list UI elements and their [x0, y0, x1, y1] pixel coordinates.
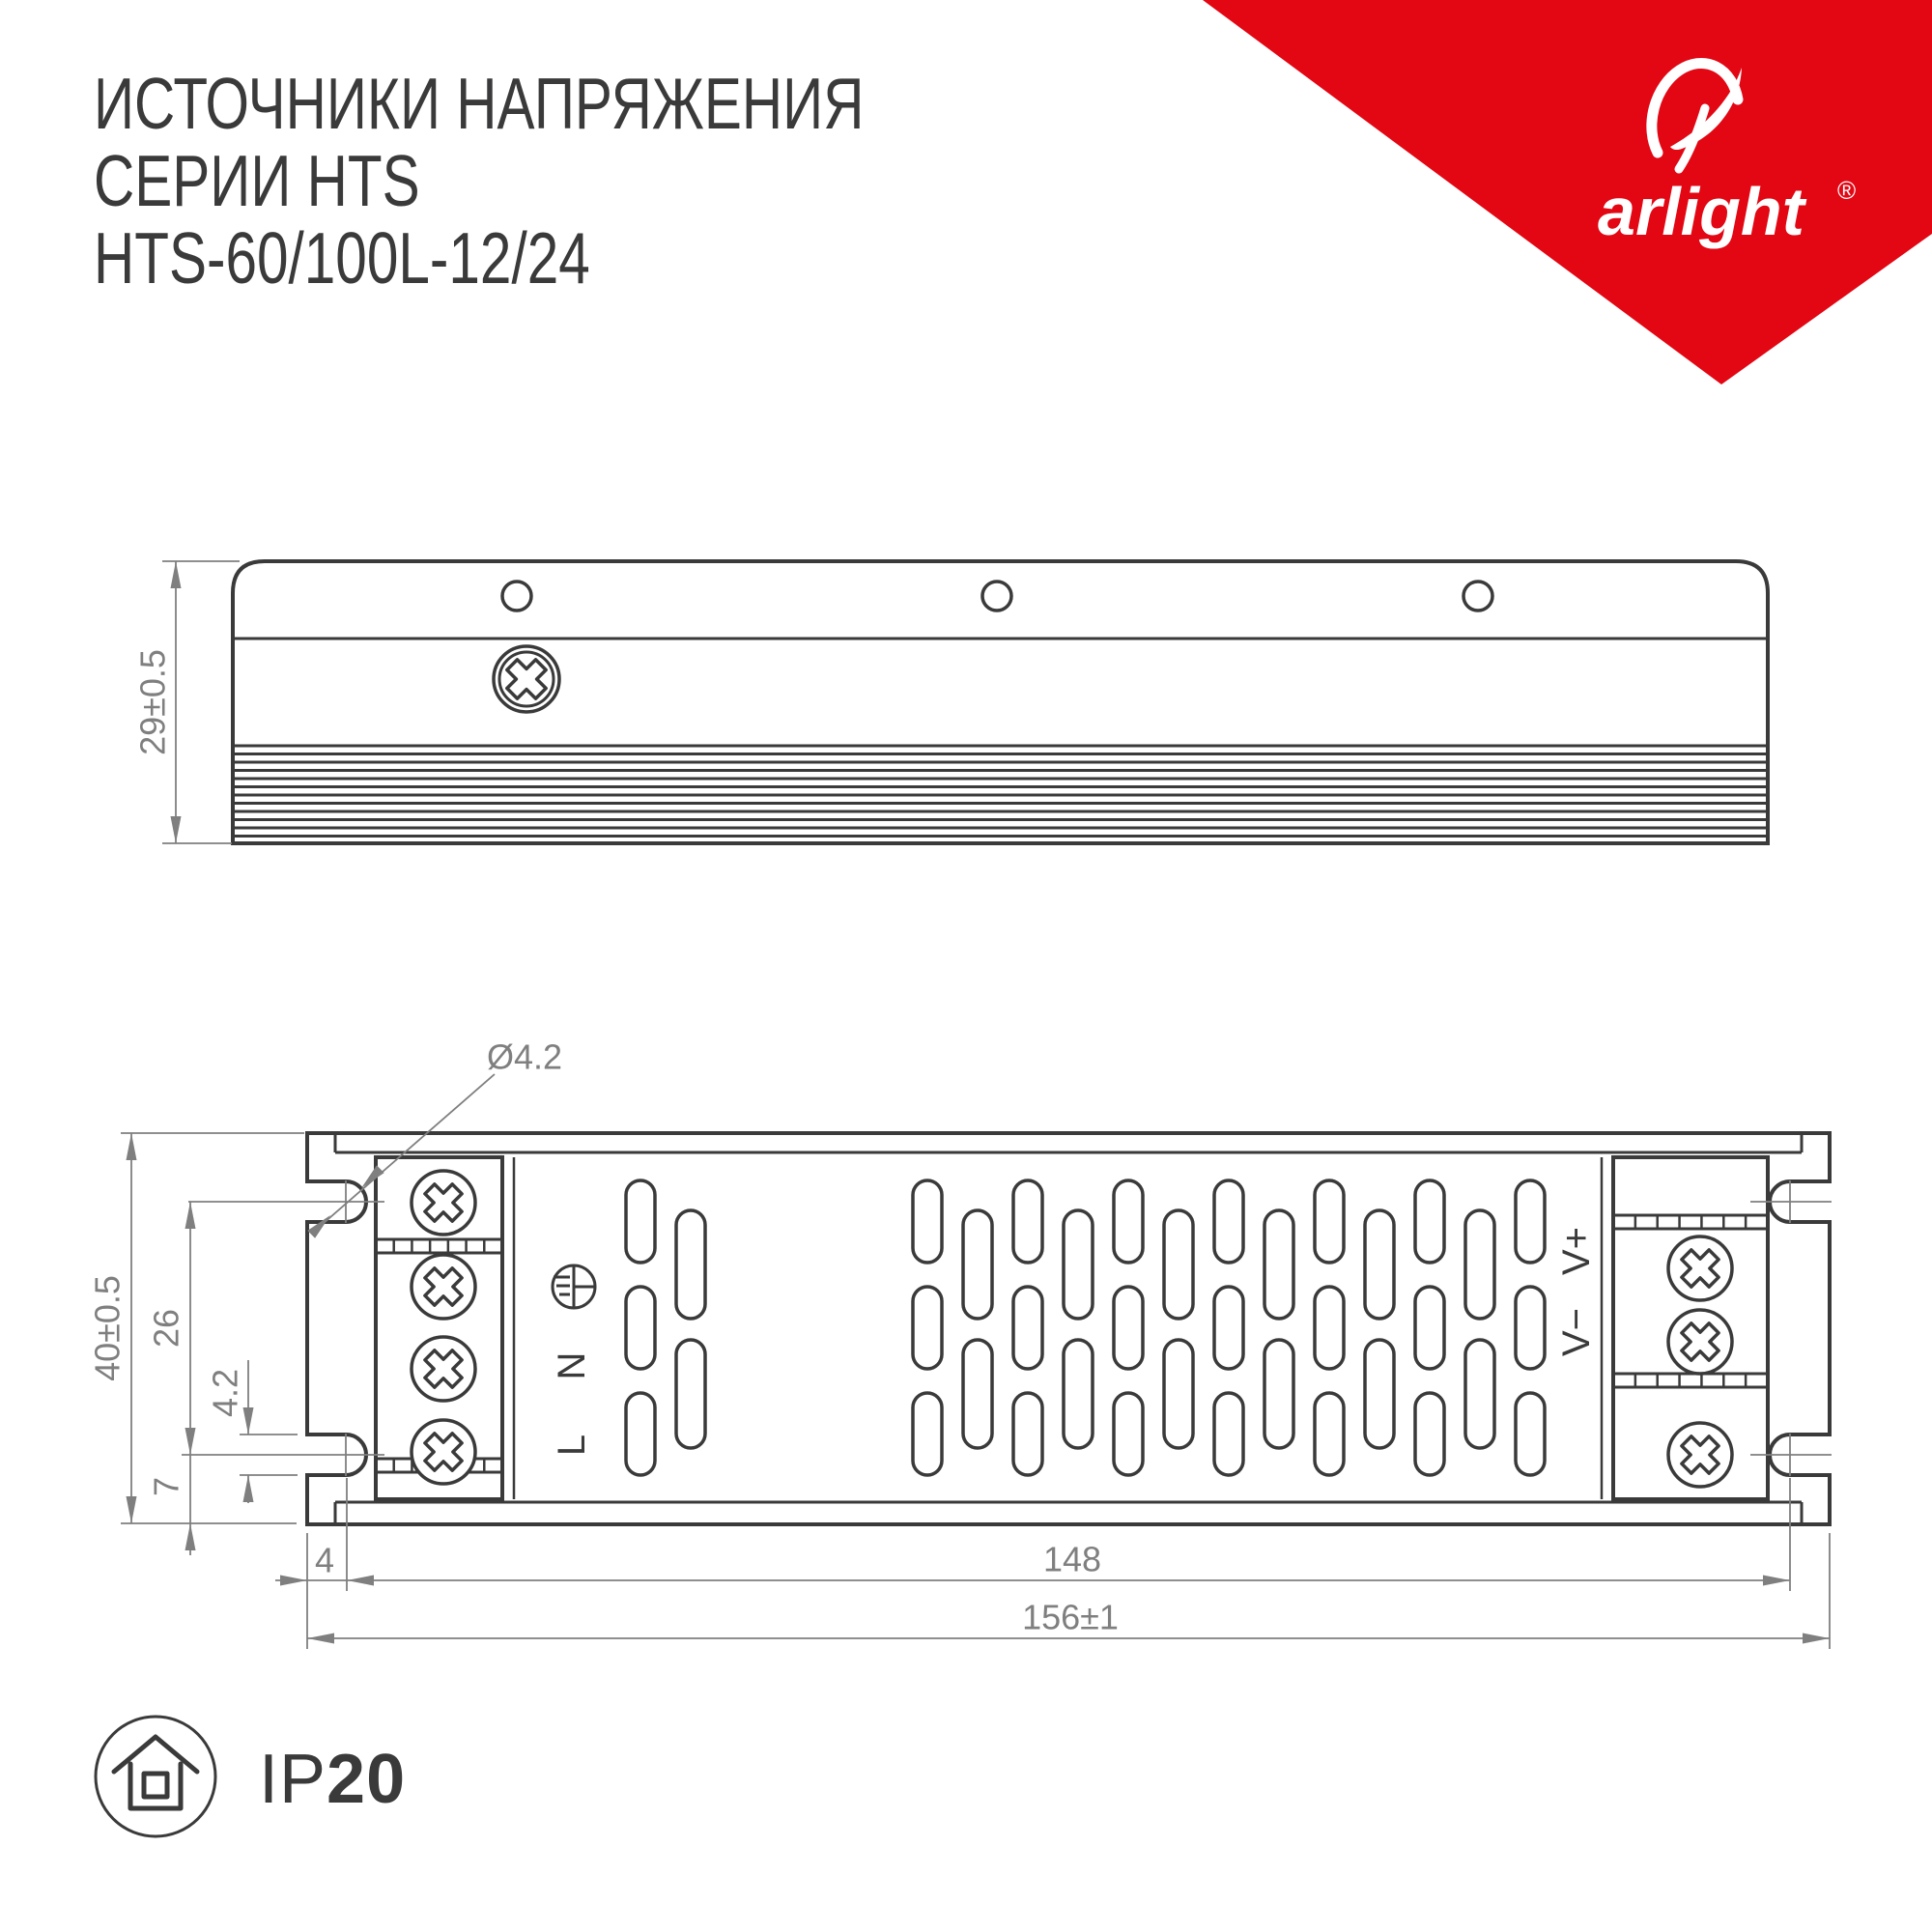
- output-label-negative: V−: [1555, 1308, 1598, 1356]
- dim-slot-width: 4.2: [206, 1369, 245, 1417]
- dimension-arrowhead: [1763, 1576, 1790, 1586]
- dimension-arrowhead: [347, 1576, 374, 1586]
- title-line-1: ИСТОЧНИКИ НАПРЯЖЕНИЯ: [94, 64, 864, 145]
- dim-side-height: 29±0.5: [133, 649, 173, 755]
- red-banner: arlight ®: [1203, 0, 1932, 384]
- ip20-badge: IP20: [96, 1717, 406, 1836]
- dim-top-height: 40±0.5: [88, 1275, 128, 1381]
- dimension-arrowhead: [127, 1133, 137, 1160]
- registered-mark: ®: [1837, 176, 1856, 205]
- input-label-neutral: N: [551, 1352, 593, 1380]
- dim-hole-span: 148: [1043, 1540, 1101, 1579]
- dimension-arrowhead: [243, 1475, 254, 1502]
- side-view: [233, 561, 1768, 843]
- ip-rating: IP20: [259, 1741, 406, 1818]
- side-view-outline: [233, 561, 1768, 843]
- dimension-arrowhead: [1803, 1634, 1830, 1644]
- dimension-arrowhead: [185, 1202, 196, 1229]
- datasheet-page: arlight ® ИСТОЧНИКИ НАПРЯЖЕНИЯ СЕРИИ HTS…: [0, 0, 1932, 1932]
- dimension-arrowhead: [185, 1428, 196, 1455]
- dimension-arrowhead: [171, 816, 182, 843]
- dim-overall-width: 156±1: [1022, 1598, 1119, 1637]
- dimension-arrowhead: [280, 1576, 307, 1586]
- output-label-positive: V+: [1555, 1227, 1598, 1275]
- title-line-2: СЕРИИ HTS: [94, 141, 420, 222]
- dim-bottom-offset: 7: [147, 1477, 186, 1496]
- dimension-arrowhead: [171, 561, 182, 588]
- ground-symbol-icon: [553, 1265, 595, 1308]
- dimension-arrowhead: [185, 1523, 196, 1550]
- dim-hole-span-vertical: 26: [147, 1309, 186, 1348]
- ip-prefix: IP: [259, 1741, 327, 1818]
- page-title: ИСТОЧНИКИ НАПРЯЖЕНИЯ СЕРИИ HTS HTS-60/10…: [94, 64, 864, 299]
- dim-hole-diameter: Ø4.2: [487, 1037, 562, 1077]
- red-triangle: [1203, 0, 1932, 384]
- brand-wordmark: arlight: [1598, 174, 1807, 249]
- dimension-arrowhead: [307, 1634, 334, 1644]
- dimension-arrowhead: [127, 1496, 137, 1523]
- technical-drawing-canvas: arlight ® ИСТОЧНИКИ НАПРЯЖЕНИЯ СЕРИИ HTS…: [0, 0, 1932, 1932]
- dim-edge-offset: 4: [315, 1541, 334, 1580]
- ip-value: 20: [327, 1741, 406, 1818]
- input-label-line: L: [551, 1435, 593, 1456]
- house-icon: [114, 1737, 197, 1808]
- title-line-3: HTS-60/100L-12/24: [94, 218, 590, 299]
